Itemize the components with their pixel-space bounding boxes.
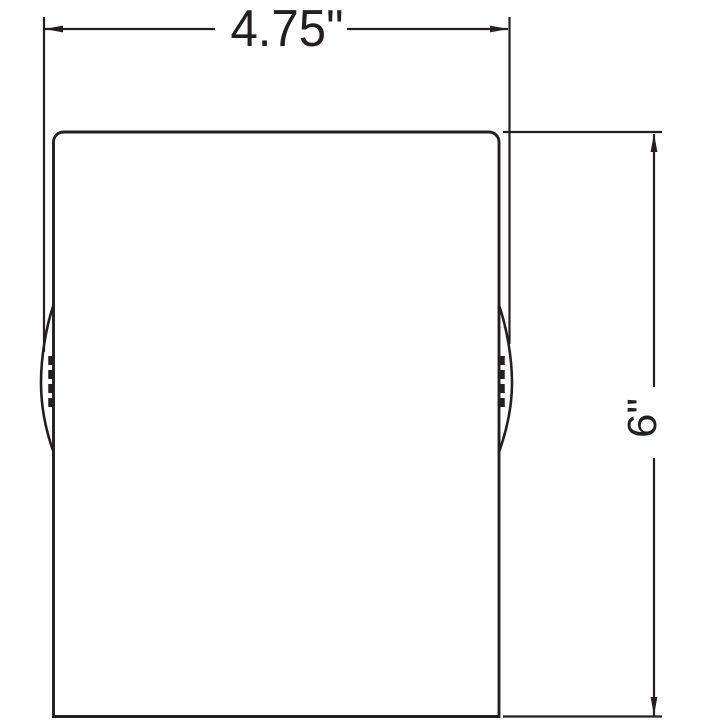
height-dimension-label: 6" bbox=[619, 398, 665, 438]
width-dimension-label: 4.75" bbox=[231, 0, 344, 58]
object-body-outline bbox=[54, 132, 500, 717]
width-arrowhead-left-icon bbox=[45, 26, 64, 33]
drawing-page: 4.75" 6" bbox=[0, 0, 720, 720]
height-arrowhead-top-icon bbox=[651, 134, 658, 153]
height-arrowhead-bottom-icon bbox=[651, 697, 658, 716]
technical-drawing-canvas: 4.75" 6" bbox=[0, 0, 720, 720]
width-arrowhead-right-icon bbox=[490, 26, 509, 33]
